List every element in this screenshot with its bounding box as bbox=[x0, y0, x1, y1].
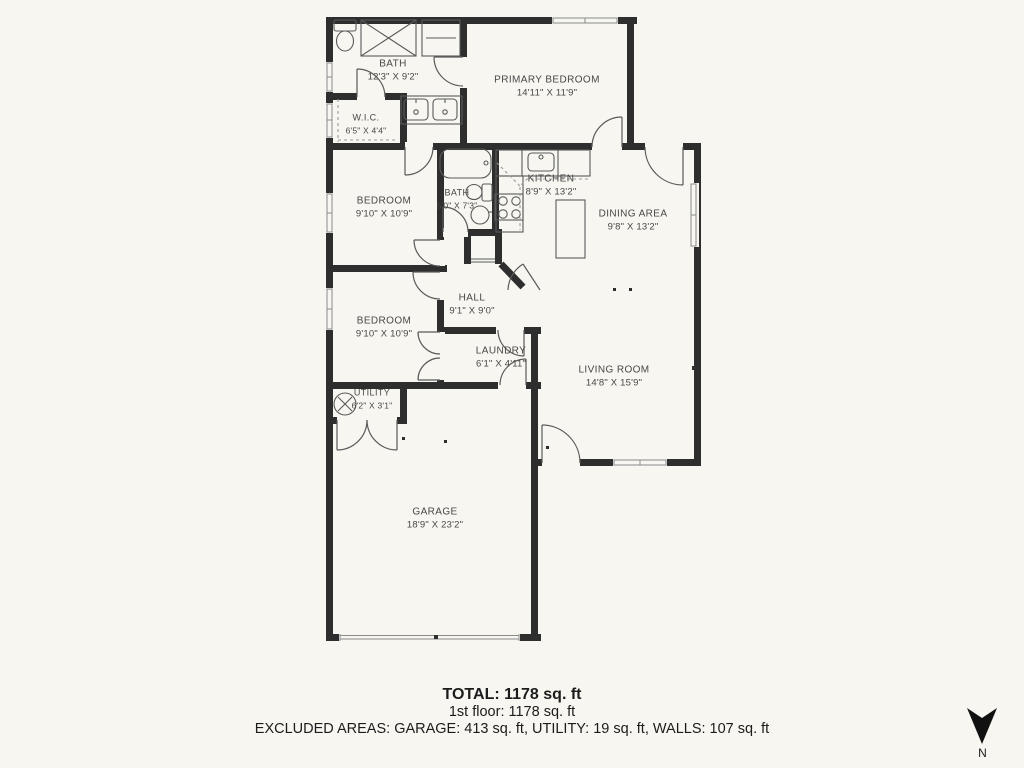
water-heater bbox=[334, 393, 356, 415]
area-summary: TOTAL: 1178 sq. ft 1st floor: 1178 sq. f… bbox=[0, 686, 1024, 738]
bedroom1-hall-door bbox=[405, 147, 433, 175]
toilet-2 bbox=[466, 184, 492, 201]
north-label: N bbox=[960, 746, 1005, 760]
toilet-main bbox=[334, 20, 356, 51]
compass: N bbox=[960, 700, 1005, 762]
back-door bbox=[645, 147, 683, 185]
bath-main-door bbox=[434, 57, 463, 86]
front-door bbox=[542, 425, 580, 463]
kitchen-island bbox=[556, 200, 585, 258]
stove bbox=[495, 194, 523, 220]
bedroom2-door bbox=[413, 272, 440, 299]
wall-openings-group bbox=[325, 16, 699, 642]
excluded-areas-text: EXCLUDED AREAS: GARAGE: 413 sq. ft, UTIL… bbox=[0, 721, 1024, 738]
pedestal-sink bbox=[471, 206, 492, 224]
linen-closet bbox=[422, 20, 460, 56]
floor-plan-drawing bbox=[0, 0, 1024, 768]
wic-closet-rod bbox=[338, 99, 398, 142]
floor-area-text: 1st floor: 1178 sq. ft bbox=[0, 704, 1024, 721]
hall-closet-shelf bbox=[471, 259, 495, 262]
double-vanity bbox=[401, 96, 462, 124]
total-area-text: TOTAL: 1178 sq. ft bbox=[0, 686, 1024, 704]
shower bbox=[361, 20, 416, 56]
bathtub bbox=[440, 149, 491, 178]
floor-plan-page: BATH 12'3" X 9'2" W.I.C. 6'5" X 4'4" PRI… bbox=[0, 0, 1024, 768]
